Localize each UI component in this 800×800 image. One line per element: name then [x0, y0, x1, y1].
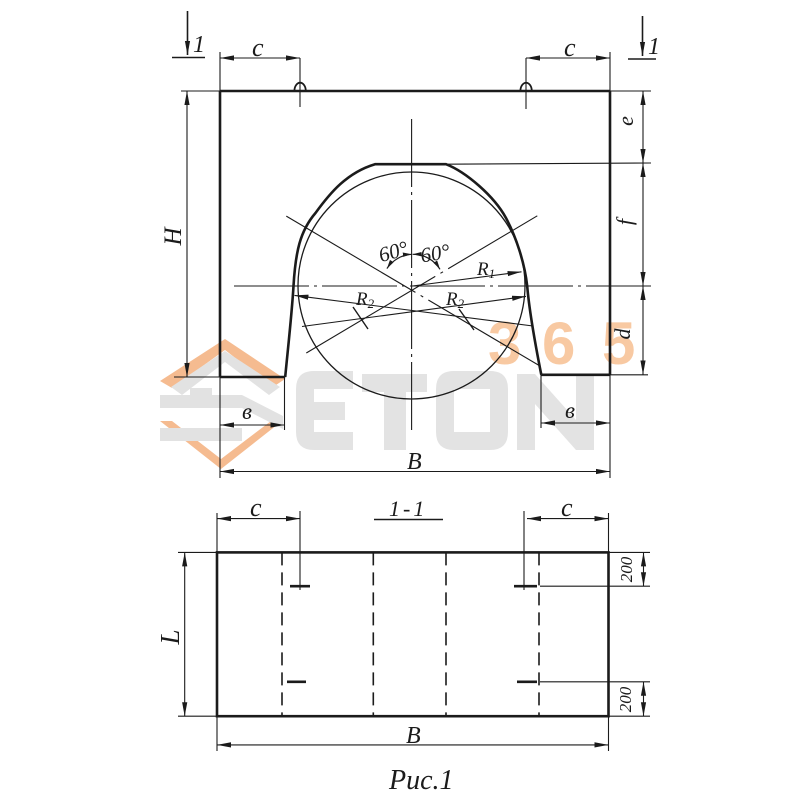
svg-text:6: 6: [542, 310, 575, 377]
svg-text:60°: 60°: [419, 239, 453, 268]
svg-text:1-1: 1-1: [389, 496, 427, 521]
svg-text:d: d: [610, 328, 635, 340]
svg-text:e: e: [613, 116, 638, 126]
svg-text:c: c: [250, 493, 262, 522]
svg-text:L: L: [155, 629, 185, 645]
svg-text:c: c: [561, 493, 573, 522]
svg-text:60°: 60°: [376, 236, 411, 267]
svg-text:c: c: [564, 33, 576, 62]
svg-text:H: H: [160, 226, 187, 247]
svg-text:R1: R1: [476, 259, 495, 281]
svg-text:200: 200: [616, 686, 635, 712]
svg-text:1: 1: [193, 32, 205, 58]
svg-text:R2: R2: [355, 289, 375, 311]
svg-text:в: в: [242, 399, 252, 424]
svg-text:Рис.1: Рис.1: [388, 765, 454, 796]
svg-text:200: 200: [617, 556, 636, 582]
svg-text:B: B: [407, 449, 422, 475]
svg-text:B: B: [406, 723, 421, 749]
svg-text:f: f: [612, 216, 637, 225]
svg-text:5: 5: [602, 310, 635, 377]
svg-text:c: c: [252, 33, 264, 62]
svg-text:R2: R2: [445, 289, 465, 311]
svg-text:1: 1: [648, 34, 660, 60]
svg-text:в: в: [565, 398, 575, 423]
svg-text:3: 3: [488, 310, 521, 377]
